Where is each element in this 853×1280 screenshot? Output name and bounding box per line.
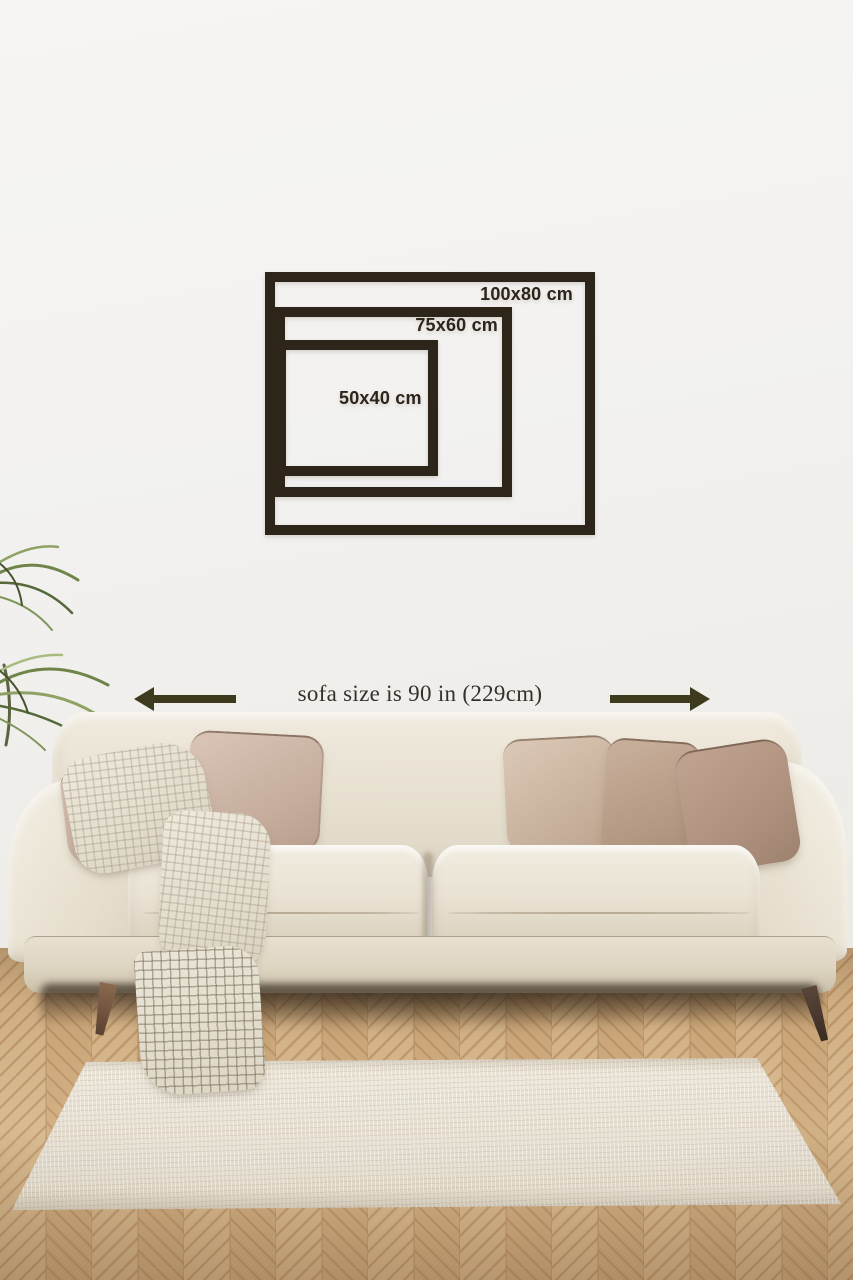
size-guide-diagram: 100x80 cm 75x60 cm 50x40 cm [265, 272, 595, 535]
size-label-100x80: 100x80 cm [480, 285, 573, 305]
living-room-scene: 100x80 cm 75x60 cm 50x40 cm sofa size is… [0, 0, 853, 1280]
throw-blanket-floor [133, 944, 267, 1097]
area-rug [0, 1048, 853, 1220]
sofa-size-text: sofa size is 90 in (229cm) [255, 681, 585, 707]
rug-shading [0, 1048, 853, 1220]
size-label-50x40: 50x40 cm [339, 389, 422, 409]
size-label-75x60: 75x60 cm [415, 316, 498, 336]
arrow-left-icon [134, 687, 154, 711]
arrow-left-shaft [152, 695, 236, 703]
arrow-right-icon [690, 687, 710, 711]
cushion-seam [448, 912, 750, 914]
arrow-right-shaft [610, 695, 692, 703]
